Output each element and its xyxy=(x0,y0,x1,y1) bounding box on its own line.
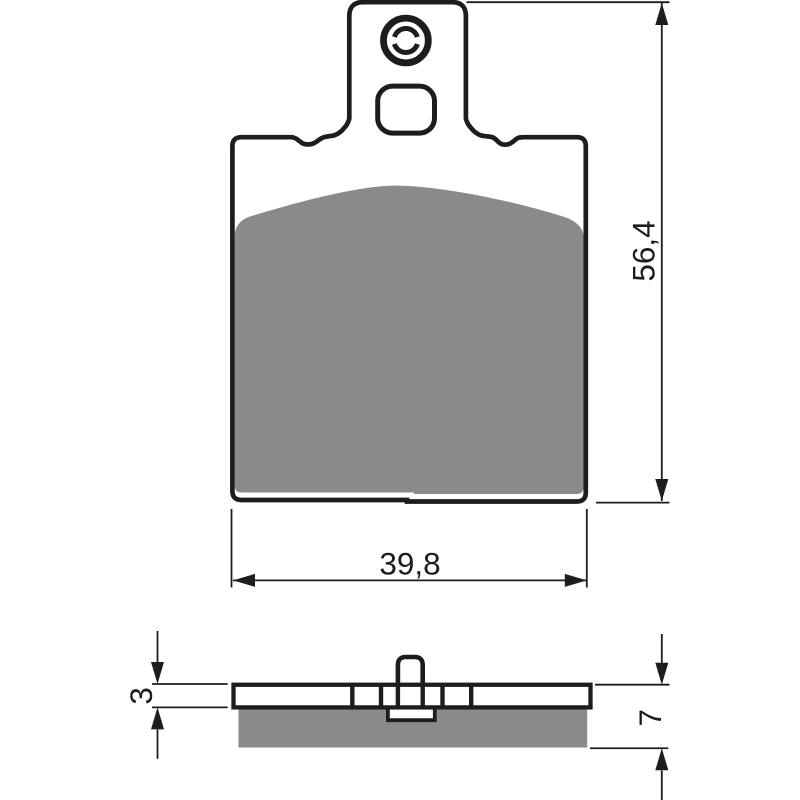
svg-text:56,4: 56,4 xyxy=(626,220,662,281)
svg-text:39,8: 39,8 xyxy=(379,546,440,582)
svg-text:3: 3 xyxy=(123,687,159,705)
svg-text:7: 7 xyxy=(632,709,668,727)
